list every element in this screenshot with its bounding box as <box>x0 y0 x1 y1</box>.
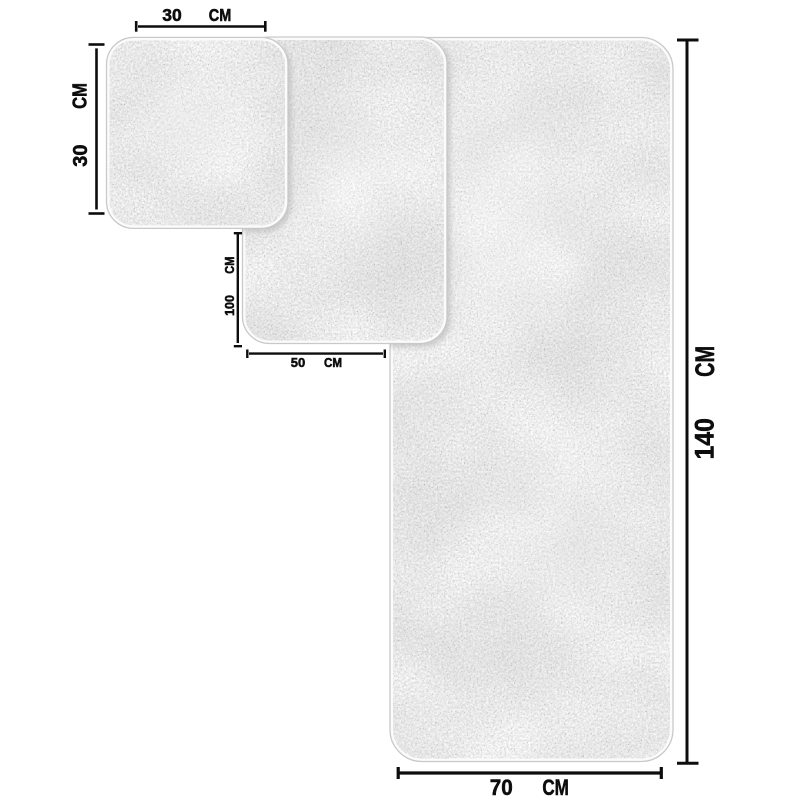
svg-text:140: 140 <box>690 418 720 460</box>
svg-text:CM: CM <box>690 346 720 377</box>
svg-text:30: 30 <box>162 5 182 25</box>
svg-text:70: 70 <box>490 775 513 800</box>
svg-text:100: 100 <box>223 295 237 316</box>
svg-text:CM: CM <box>209 5 232 25</box>
svg-text:30: 30 <box>70 144 92 166</box>
svg-text:50: 50 <box>291 355 305 370</box>
svg-text:CM: CM <box>69 83 91 109</box>
svg-text:CM: CM <box>324 355 342 370</box>
svg-text:CM: CM <box>223 257 237 274</box>
svg-text:CM: CM <box>542 775 569 800</box>
